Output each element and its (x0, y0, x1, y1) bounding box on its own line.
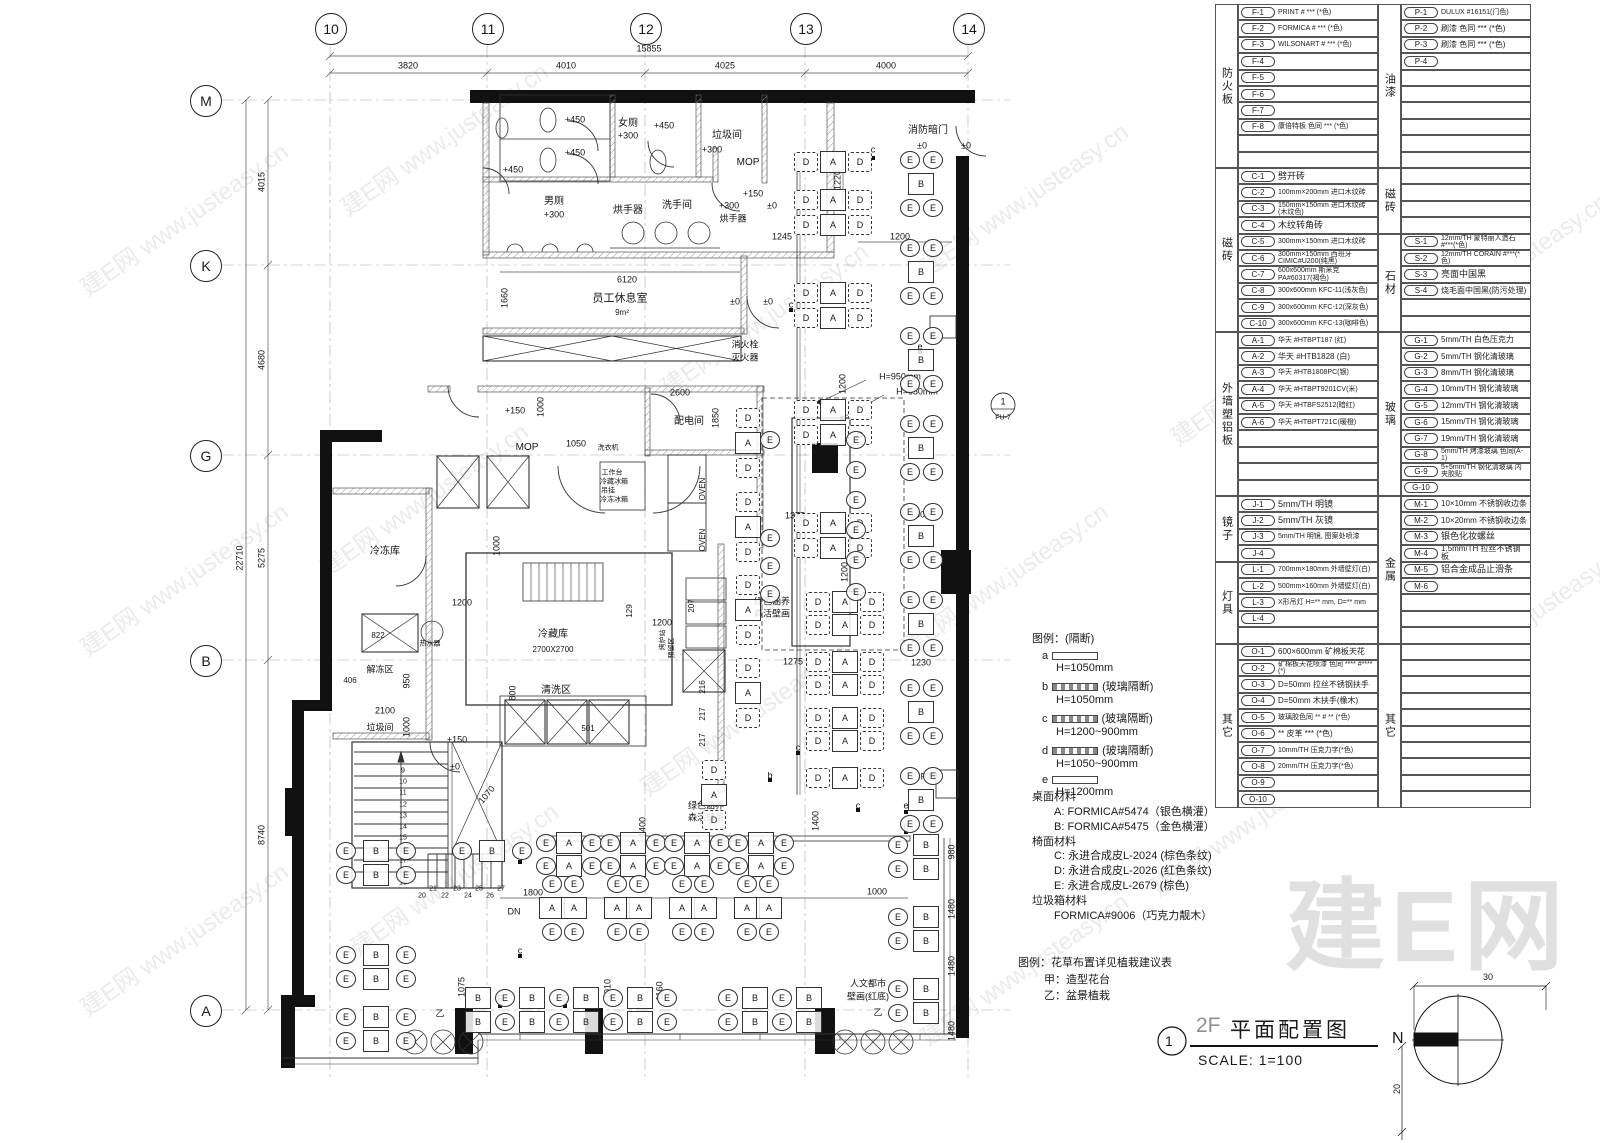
material-note-line: D: 永进合成皮L-2026 (红色条纹) (1032, 864, 1215, 879)
seat-a: A (735, 516, 761, 538)
legend-category: 磁砖 (1378, 168, 1401, 234)
legend-category: 防火板 (1215, 4, 1238, 168)
legend-code: M-2 (1404, 515, 1438, 526)
legend-row (1238, 430, 1378, 446)
legend-code: G-8 (1404, 449, 1438, 460)
seat-d: D (794, 190, 818, 210)
seat-d: D (848, 152, 872, 172)
legend-desc: 8mm/TH 钢化清玻璃 (1441, 369, 1514, 377)
seat-e: E (564, 923, 584, 941)
material-note-line: 垃圾箱材料 (1032, 894, 1215, 909)
seat-b: B (519, 987, 545, 1009)
seat-b: B (742, 1011, 768, 1033)
legend-row: A-2华天 #HTB1828 (白) (1238, 348, 1378, 364)
seat-e: E (772, 989, 792, 1007)
legend-code: C-10 (1241, 318, 1275, 329)
legend-row: M-6 (1401, 578, 1531, 594)
seat-a: A (735, 432, 761, 454)
seat-d: D (702, 760, 726, 780)
legend-code: J-2 (1241, 515, 1275, 526)
seat-e: E (603, 1013, 623, 1031)
partition-height: H=1200~900mm (1032, 726, 1153, 738)
legend-desc: 华天 #HTBFS2512(暗红) (1278, 402, 1355, 409)
seat-b: B (908, 701, 934, 723)
seat-e: E (900, 639, 920, 657)
legend-row: J-15mm/TH 明镜 (1238, 496, 1378, 512)
legend-row: O-6** 皮革 *** (*色) (1238, 726, 1378, 742)
seat-a: A (820, 282, 846, 304)
seat-e: E (396, 1032, 416, 1050)
seat-e: E (923, 151, 943, 169)
legend-desc: X形吊灯 H=** mm, D=** mm (1278, 599, 1366, 606)
legend-desc: PRINT # *** (*色) (1278, 9, 1331, 16)
partition-item: a (1032, 650, 1153, 662)
legend-row: G-38mm/TH 钢化清玻璃 (1401, 365, 1531, 381)
seat-a: A (620, 855, 646, 877)
seat-e: E (336, 1008, 356, 1026)
seat-d: D (736, 542, 760, 562)
legend-row (1238, 447, 1378, 463)
legend-row: C-5300mm×150mm 进口木纹砖 (1238, 234, 1378, 250)
legend-row (1401, 152, 1531, 168)
legend-category: 油漆 (1378, 4, 1401, 168)
legend-code: G-4 (1404, 384, 1438, 395)
legend-code: C-3 (1241, 203, 1275, 214)
seat-a: A (756, 897, 782, 919)
legend-row: G-85mm/TH 烤漆玻璃 色同(A-1) (1401, 447, 1531, 463)
legend-code: M-5 (1404, 564, 1438, 575)
legend-row: L-3X形吊灯 H=** mm, D=** mm (1238, 594, 1378, 610)
seat-e: E (737, 875, 757, 893)
legend-row: C-10300x600mm KFC-13(咖啡色) (1238, 316, 1378, 332)
seat-e: E (607, 923, 627, 941)
seat-e: E (888, 908, 908, 926)
legend-row: C-7600x600mm 斯米克 PA#60317(褐色) (1238, 266, 1378, 282)
legend-desc: 300mm×150mm 西班牙CIMIC#U200(纯黑) (1278, 251, 1375, 265)
seat-d: D (736, 625, 760, 645)
seat-e: E (846, 521, 866, 539)
seat-b: B (913, 1002, 939, 1024)
legend-row (1401, 135, 1531, 151)
seat-a: A (820, 537, 846, 559)
seat-b: B (908, 613, 934, 635)
seat-e: E (542, 923, 562, 941)
legend-code: A-1 (1241, 335, 1275, 346)
legend-desc: 10×10mm 不锈钢收边条 (1441, 500, 1527, 508)
seat-b: B (363, 864, 389, 886)
partition-bar (1052, 776, 1098, 784)
legend-row (1401, 594, 1531, 610)
seat-b: B (573, 987, 599, 1009)
legend-code: O-1 (1241, 646, 1275, 657)
legend-desc: 300x600mm KFC-11(浅灰色) (1278, 287, 1368, 294)
seat-e: E (900, 199, 920, 217)
seat-a: A (832, 651, 858, 673)
partition-legend: 图例：(隔断)aH=1050mmb(玻璃隔断)H=1050mmc(玻璃隔断)H=… (1032, 630, 1153, 798)
seat-d: D (860, 615, 884, 635)
legend-code: O-7 (1241, 745, 1275, 756)
seat-e: E (923, 327, 943, 345)
legend-desc: 500mm×160mm 外墙壁灯(白) (1278, 583, 1370, 590)
legend-row (1401, 676, 1531, 692)
seat-e: E (888, 860, 908, 878)
plant-note-line: 图例：花草布置详见植栽建议表 (1018, 955, 1172, 972)
seat-b: B (363, 840, 389, 862)
seat-e: E (900, 463, 920, 481)
plant-note-line: 甲：造型花台 (1018, 972, 1172, 989)
legend-code: G-5 (1404, 400, 1438, 411)
seat-b: B (627, 987, 653, 1009)
seat-e: E (452, 842, 472, 860)
seat-e: E (923, 375, 943, 393)
legend-desc: 5mm/TH 白色压克力 (1441, 336, 1514, 344)
seat-e: E (759, 923, 779, 941)
legend-code: L-1 (1241, 564, 1275, 575)
material-note-line: C: 永进合成皮L-2024 (棕色条纹) (1032, 849, 1215, 864)
seat-d: D (736, 708, 760, 728)
legend-category: 其它 (1378, 644, 1401, 808)
seat-e: E (694, 923, 714, 941)
seat-a: A (701, 784, 727, 806)
legend-row: G-10 (1401, 480, 1531, 496)
seat-e: E (759, 875, 779, 893)
seat-d: D (806, 768, 830, 788)
seat-e: E (900, 679, 920, 697)
seat-e: E (923, 727, 943, 745)
legend-desc: 600x600mm 斯米克 PA#60317(褐色) (1278, 267, 1375, 281)
legend-code: F-5 (1241, 72, 1275, 83)
legend-code: P-3 (1404, 39, 1438, 50)
legend-desc: 12mm/TH 蒙特丽人造石 #***(*色) (1441, 235, 1528, 249)
seat-d: D (794, 152, 818, 172)
legend-row: G-25mm/TH 钢化清玻璃 (1401, 348, 1531, 364)
material-note-line: A: FORMICA#5474（银色横灌） (1032, 805, 1215, 820)
legend-desc: 12mm/TH 钢化清玻璃 (1441, 402, 1518, 410)
seat-e: E (495, 989, 515, 1007)
seat-a: A (748, 832, 774, 854)
material-note-line: E: 永进合成皮L-2679 (棕色) (1032, 879, 1215, 894)
legend-row: J-4 (1238, 545, 1378, 561)
legend-row: A-5华天 #HTBFS2512(暗红) (1238, 398, 1378, 414)
legend-desc: 木纹转角砖 (1278, 221, 1323, 230)
legend-row: C-3150mm×150mm 进口木纹砖(木纹色) (1238, 201, 1378, 217)
legend-code: F-7 (1241, 105, 1275, 116)
legend-desc: D=50mm 拉丝不锈钢扶手 (1278, 681, 1369, 689)
partition-item: e (1032, 774, 1153, 786)
legend-row: O-2矿棉板天花喷漆 色同 **** #****(*) (1238, 660, 1378, 676)
seat-d: D (860, 768, 884, 788)
seat-b: B (363, 968, 389, 990)
legend-row: P-1DULUX #16151(门色) (1401, 4, 1531, 20)
seat-e: E (672, 923, 692, 941)
seat-d: D (806, 731, 830, 751)
legend-row (1401, 168, 1531, 184)
partition-height: H=1050mm (1032, 694, 1153, 706)
seat-d: D (794, 308, 818, 328)
legend-code: P-2 (1404, 23, 1438, 34)
legend-category: 其它 (1215, 644, 1238, 808)
seat-b: B (363, 1006, 389, 1028)
legend-category: 灯具 (1215, 562, 1238, 644)
seat-e: E (542, 875, 562, 893)
legend-row: C-4木纹转角砖 (1238, 217, 1378, 233)
legend-desc: 亮面中国黑 (1441, 270, 1486, 279)
legend-row: G-15mm/TH 白色压克力 (1401, 332, 1531, 348)
seat-e: E (536, 834, 556, 852)
legend-row: O-9 (1238, 775, 1378, 791)
material-note-line: 椅面材料 (1032, 835, 1215, 850)
legend-row (1401, 693, 1531, 709)
legend-code: A-6 (1241, 417, 1275, 428)
legend-code: O-10 (1241, 794, 1275, 805)
seat-d: D (806, 592, 830, 612)
seat-d: D (794, 425, 818, 445)
seat-e: E (728, 857, 748, 875)
seat-b: B (465, 1011, 491, 1033)
legend-desc: 银色化妆螺丝 (1441, 532, 1495, 541)
seat-e: E (900, 815, 920, 833)
seat-e: E (336, 866, 356, 884)
seat-e: E (923, 503, 943, 521)
legend-row: P-4 (1401, 53, 1531, 69)
seat-e: E (846, 491, 866, 509)
material-notes: 桌面材料A: FORMICA#5474（银色横灌）B: FORMICA#5475… (1032, 790, 1215, 924)
legend-code: G-3 (1404, 367, 1438, 378)
legend-row: A-1华天 #HTBPT187 (红) (1238, 332, 1378, 348)
seat-e: E (923, 199, 943, 217)
legend-code: S-4 (1404, 285, 1438, 296)
legend-code: P-4 (1404, 56, 1438, 67)
seat-b: B (363, 944, 389, 966)
legend-row (1401, 709, 1531, 725)
legend-category: 磁砖 (1215, 168, 1238, 332)
seat-e: E (336, 970, 356, 988)
legend-row (1401, 184, 1531, 200)
seat-e: E (923, 591, 943, 609)
seat-e: E (657, 1013, 677, 1031)
seat-e: E (629, 923, 649, 941)
seat-a: A (691, 897, 717, 919)
seat-a: A (820, 214, 846, 236)
legend-row (1401, 217, 1531, 233)
grid-col-bubble: 11 (472, 13, 504, 45)
legend-row (1401, 775, 1531, 791)
seat-e: E (396, 970, 416, 988)
seat-d: D (848, 308, 872, 328)
legend-code: G-10 (1404, 482, 1438, 493)
legend-desc: 700mm×180mm 外墙壁灯(白) (1278, 566, 1370, 573)
seat-d: D (848, 400, 872, 420)
legend-row: C-1劈开砖 (1238, 168, 1378, 184)
legend-code: O-6 (1241, 728, 1275, 739)
seat-e: E (603, 989, 623, 1007)
seat-e: E (772, 1013, 792, 1031)
seat-e: E (760, 529, 780, 547)
seat-e: E (774, 857, 794, 875)
north-dim-top: 30 (1483, 972, 1493, 982)
legend-row: C-2100mm×200mm 进口木纹砖 (1238, 184, 1378, 200)
legend-desc: 5mm/TH 烤漆玻璃 色同(A-1) (1441, 448, 1528, 462)
legend-category: 外墙塑铝板 (1215, 332, 1238, 496)
legend-row: J-25mm/TH 灰镜 (1238, 512, 1378, 528)
legend-row: L-4 (1238, 611, 1378, 627)
legend-code: F-6 (1241, 89, 1275, 100)
seat-e: E (846, 431, 866, 449)
legend-code: P-1 (1404, 7, 1438, 18)
north-label: N (1392, 1030, 1404, 1048)
legend-code: L-3 (1241, 597, 1275, 608)
seat-e: E (900, 551, 920, 569)
partition-height: H=1050mm (1032, 662, 1153, 674)
legend-code: O-9 (1241, 777, 1275, 788)
legend-row: L-2500mm×160mm 外墙壁灯(白) (1238, 578, 1378, 594)
legend-code: C-2 (1241, 187, 1275, 198)
legend-desc: 1.5mm/TH 拉丝不锈钢板 (1441, 545, 1528, 561)
seat-e: E (760, 431, 780, 449)
legend-row: O-4D=50mm 木扶手(橡木) (1238, 693, 1378, 709)
legend-code: F-1 (1241, 7, 1275, 18)
legend-row: M-41.5mm/TH 拉丝不锈钢板 (1401, 545, 1531, 561)
seat-e: E (923, 551, 943, 569)
seat-b: B (479, 840, 505, 862)
seat-e: E (336, 842, 356, 860)
legend-row: F-5 (1238, 70, 1378, 86)
seat-e: E (900, 727, 920, 745)
seat-a: A (820, 307, 846, 329)
legend-code: J-1 (1241, 499, 1275, 510)
seat-a: A (820, 189, 846, 211)
legend-row: O-710mm/TH 压克力字(*色) (1238, 742, 1378, 758)
seat-d: D (736, 408, 760, 428)
seat-d: D (736, 458, 760, 478)
legend-row: L-1700mm×180mm 外墙壁灯(白) (1238, 562, 1378, 578)
seat-a: A (820, 424, 846, 446)
legend-row: O-3D=50mm 拉丝不锈钢扶手 (1238, 676, 1378, 692)
legend-desc: ** 皮革 *** (*色) (1278, 730, 1333, 738)
legend-desc: 19mm/TH 钢化清玻璃 (1441, 435, 1518, 443)
partition-item: c(玻璃隔断) (1032, 710, 1153, 726)
floor-tag: 2F (1196, 1014, 1221, 1038)
seat-e: E (694, 875, 714, 893)
legend-code: C-4 (1241, 220, 1275, 231)
legend-code: G-1 (1404, 335, 1438, 346)
legend-row: C-8300x600mm KFC-11(浅灰色) (1238, 283, 1378, 299)
material-note-line: 桌面材料 (1032, 790, 1215, 805)
legend-desc: 烧毛面中国黑(防污处理) (1441, 287, 1526, 295)
legend-row: A-4华天 #HTBPT9201CV(米) (1238, 381, 1378, 397)
legend-desc: 矿棉板天花喷漆 色同 **** #****(*) (1278, 661, 1375, 675)
seat-a: A (556, 855, 582, 877)
legend-category: 玻璃 (1378, 332, 1401, 496)
seat-b: B (908, 789, 934, 811)
seat-e: E (718, 1013, 738, 1031)
sheet-number: 1 (1165, 1033, 1173, 1049)
seat-e: E (900, 503, 920, 521)
partition-item: d(玻璃隔断) (1032, 742, 1153, 758)
legend-desc: FORMICA # *** (*色) (1278, 25, 1342, 32)
grid-row-bubble: G (190, 440, 222, 472)
seat-b: B (908, 525, 934, 547)
seat-e: E (710, 834, 730, 852)
plant-note-line: 乙：盆景植栽 (1018, 988, 1172, 1005)
legend-code: C-8 (1241, 285, 1275, 296)
seat-e: E (888, 1004, 908, 1022)
seat-b: B (913, 906, 939, 928)
material-note-line: B: FORMICA#5475（金色横灌） (1032, 820, 1215, 835)
seat-e: E (336, 1032, 356, 1050)
legend-desc: 10mm/TH 压克力字(*色) (1278, 747, 1353, 754)
seat-e: E (923, 239, 943, 257)
legend-code: S-1 (1404, 236, 1438, 247)
legend-row: G-512mm/TH 钢化清玻璃 (1401, 398, 1531, 414)
legend-desc: 康倍特板 色同 *** (*色) (1278, 123, 1348, 130)
seat-d: D (848, 190, 872, 210)
seat-b: B (913, 858, 939, 880)
legend-code: A-5 (1241, 400, 1275, 411)
seat-e: E (900, 239, 920, 257)
legend-row (1401, 627, 1531, 643)
seat-d: D (794, 215, 818, 235)
seat-a: A (620, 832, 646, 854)
seat-e: E (336, 946, 356, 964)
seat-e: E (900, 151, 920, 169)
legend-code: M-1 (1404, 499, 1438, 510)
legend-desc: 12mm/TH CORAIN #***(*色) (1441, 251, 1528, 265)
seat-b: B (742, 987, 768, 1009)
legend-code: O-3 (1241, 679, 1275, 690)
legend-code: O-4 (1241, 695, 1275, 706)
legend-desc: 15mm/TH 钢化清玻璃 (1441, 418, 1518, 426)
partition-bar (1052, 715, 1098, 723)
legend-row: F-7 (1238, 102, 1378, 118)
legend-code: F-3 (1241, 39, 1275, 50)
legend-code: G-2 (1404, 351, 1438, 362)
seat-a: A (832, 767, 858, 789)
seat-a: A (820, 399, 846, 421)
legend-row: O-10 (1238, 791, 1378, 807)
legend-row: O-5玻璃胶色同 ** # ** (*色) (1238, 709, 1378, 725)
seat-a: A (832, 730, 858, 752)
seat-e: E (900, 591, 920, 609)
legend-desc: 刷漆 色同 *** (*色) (1441, 41, 1505, 49)
legend-row: P-2刷漆 色同 *** (*色) (1401, 20, 1531, 36)
legend-row: P-3刷漆 色同 *** (*色) (1401, 37, 1531, 53)
legend-row (1401, 660, 1531, 676)
partition-legend-title: 图例：(隔断) (1032, 630, 1153, 646)
legend-row: F-4 (1238, 53, 1378, 69)
seat-a: A (735, 599, 761, 621)
legend-row: G-95+5mm/TH 钢化清玻璃 内夹胶贴 (1401, 463, 1531, 479)
seat-e: E (629, 875, 649, 893)
seat-d: D (702, 810, 726, 830)
seat-e: E (664, 857, 684, 875)
seat-d: D (794, 283, 818, 303)
legend-row: F-3WILSONART # *** (*色) (1238, 37, 1378, 53)
seat-d: D (794, 400, 818, 420)
seat-e: E (564, 875, 584, 893)
seat-e: E (396, 842, 416, 860)
seat-b: B (913, 834, 939, 856)
seat-e: E (646, 834, 666, 852)
seat-e: E (672, 875, 692, 893)
grid-col-bubble: 12 (630, 13, 662, 45)
seat-d: D (806, 615, 830, 635)
legend-row: M-110×10mm 不锈钢收边条 (1401, 496, 1531, 512)
seat-d: D (806, 708, 830, 728)
legend-desc: 5+5mm/TH 钢化清玻璃 内夹胶贴 (1441, 464, 1528, 478)
legend-desc: D=50mm 木扶手(橡木) (1278, 697, 1358, 705)
legend-row (1401, 102, 1531, 118)
